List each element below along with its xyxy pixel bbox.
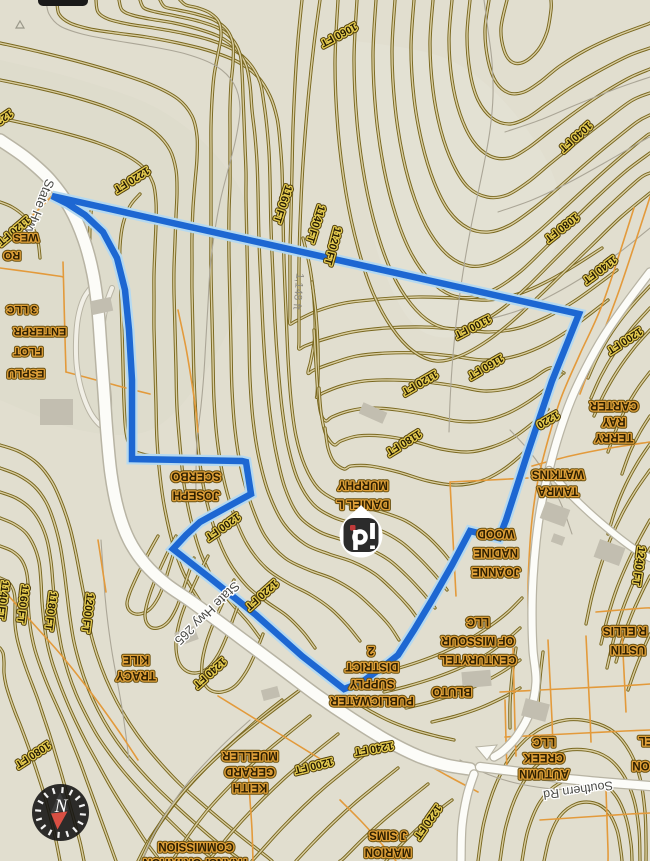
svg-text:MURPHY: MURPHY [338,479,388,491]
svg-text:J SIMS: J SIMS [369,829,407,841]
svg-text:MUELLER: MUELLER [222,749,278,761]
svg-text:AUTUMN: AUTUMN [519,767,569,779]
svg-text:KEITH: KEITH [233,781,268,793]
svg-text:LLC: LLC [533,735,555,747]
svg-text:DISTRICT: DISTRICT [345,660,398,672]
svg-text:N: N [54,796,69,817]
svg-text:JOANNE: JOANNE [472,565,520,577]
svg-text:BLUTO: BLUTO [432,685,471,697]
svg-text:FLOT: FLOT [13,345,42,357]
svg-text:WOOD: WOOD [477,527,514,539]
svg-text:2: 2 [368,644,374,656]
svg-text:EL: EL [639,734,650,746]
svg-text:ON: ON [632,759,649,771]
svg-text:NADINE: NADINE [474,546,518,558]
svg-text:COMMISSION: COMMISSION [158,840,233,852]
svg-text:LLC: LLC [467,615,489,627]
svg-text:JOSEPH: JOSEPH [173,489,220,501]
svg-text:3 LLC: 3 LLC [7,303,38,315]
svg-text:SCERBO: SCERBO [171,470,220,482]
svg-text:MARION: MARION [365,846,412,858]
svg-text:PUBLICWATER: PUBLICWATER [330,694,414,706]
svg-text:ESPLU: ESPLU [8,367,45,379]
svg-text:TAMRA: TAMRA [538,485,579,497]
svg-text:ENTERPR: ENTERPR [14,325,67,337]
svg-text:USTIN: USTIN [611,643,646,655]
svg-text:SUPPLY: SUPPLY [349,677,394,689]
svg-text:OF MISSOUR: OF MISSOUR [441,634,515,646]
svg-text:TERRY: TERRY [594,431,633,443]
svg-text:RO: RO [3,249,20,261]
svg-text:TRACY: TRACY [116,669,156,681]
svg-text:KILE: KILE [123,653,150,665]
svg-text:WATKINS: WATKINS [532,468,585,480]
svg-text:WES: WES [13,231,38,243]
svg-text:CENTURYTEL: CENTURYTEL [440,653,517,665]
svg-text:CARTER: CARTER [589,399,638,411]
svg-text:TRANSPORTATION: TRANSPORTATION [143,856,249,861]
svg-text:GERARD: GERARD [225,765,275,777]
svg-text:RAY: RAY [602,415,626,427]
svg-text:R ELLIS: R ELLIS [603,624,647,636]
svg-text:CREEK: CREEK [523,751,564,763]
